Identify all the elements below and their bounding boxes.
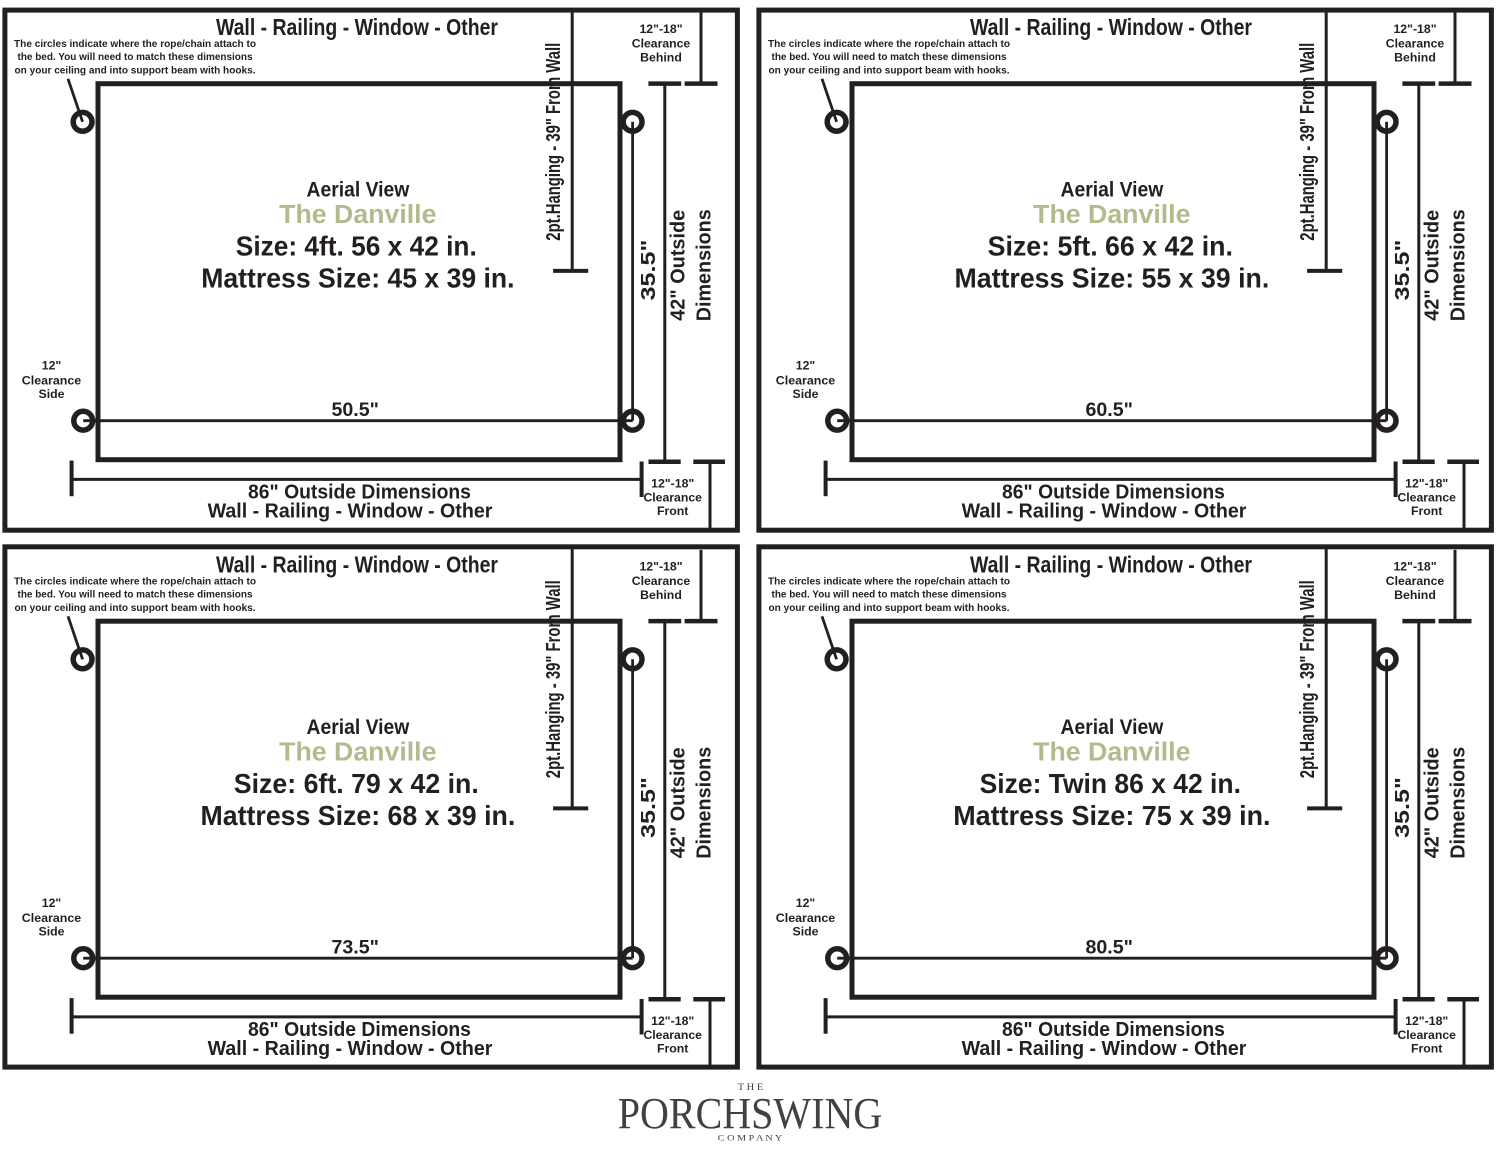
svg-text:Mattress Size: 45 x 39 in.: Mattress Size: 45 x 39 in. (201, 262, 514, 293)
svg-text:Size: 4ft. 56 x 42 in.: Size: 4ft. 56 x 42 in. (236, 231, 477, 262)
svg-text:The circles indicate where the: The circles indicate where the rope/chai… (768, 39, 1010, 50)
svg-text:12": 12" (42, 359, 62, 373)
svg-text:2pt.Hanging - 39" From Wall: 2pt.Hanging - 39" From Wall (1297, 43, 1319, 241)
svg-text:80.5": 80.5" (1085, 937, 1132, 959)
svg-text:The circles indicate where the: The circles indicate where the rope/chai… (14, 576, 256, 587)
svg-text:Wall - Railing - Window - Othe: Wall - Railing - Window - Other (216, 14, 498, 40)
svg-text:The Danville: The Danville (279, 199, 436, 229)
svg-text:Front: Front (1411, 504, 1442, 518)
svg-text:Behind: Behind (1394, 51, 1436, 65)
svg-text:Clearance: Clearance (643, 491, 702, 505)
svg-text:The Danville: The Danville (279, 736, 436, 766)
svg-text:Clearance: Clearance (632, 36, 691, 50)
svg-text:Clearance: Clearance (22, 374, 82, 388)
svg-text:The circles indicate where the: The circles indicate where the rope/chai… (14, 39, 256, 50)
svg-text:35.5": 35.5" (1391, 777, 1414, 838)
svg-text:The circles indicate where the: The circles indicate where the rope/chai… (768, 576, 1010, 587)
svg-text:Aerial View: Aerial View (1061, 177, 1164, 201)
svg-text:Aerial View: Aerial View (1061, 715, 1164, 739)
svg-text:on your ceiling and into suppo: on your ceiling and into support beam wi… (15, 603, 256, 614)
svg-text:Wall - Railing - Window - Othe: Wall - Railing - Window - Other (970, 14, 1252, 40)
svg-text:12"-18": 12"-18" (651, 477, 694, 491)
svg-text:42" Outside: 42" Outside (668, 210, 690, 321)
svg-text:Side: Side (793, 925, 819, 939)
svg-text:Behind: Behind (1394, 588, 1436, 602)
svg-text:Front: Front (1411, 1042, 1442, 1056)
svg-text:12"-18": 12"-18" (1405, 1014, 1448, 1028)
svg-text:Side: Side (793, 387, 819, 401)
svg-text:Clearance: Clearance (1397, 491, 1456, 505)
svg-text:2pt.Hanging - 39" From Wall: 2pt.Hanging - 39" From Wall (1297, 580, 1319, 778)
svg-text:Wall - Railing - Window - Othe: Wall - Railing - Window - Other (208, 1037, 493, 1060)
svg-text:PORCHSWING: PORCHSWING (618, 1088, 883, 1138)
svg-text:the bed. You will need to matc: the bed. You will need to match these di… (772, 52, 1007, 63)
svg-text:Behind: Behind (640, 51, 682, 65)
svg-text:Aerial View: Aerial View (307, 177, 410, 201)
svg-text:12": 12" (796, 359, 816, 373)
svg-text:Behind: Behind (640, 588, 682, 602)
svg-text:12"-18": 12"-18" (1393, 22, 1436, 36)
svg-text:Side: Side (39, 387, 65, 401)
svg-text:The Danville: The Danville (1033, 199, 1190, 229)
svg-text:12"-18": 12"-18" (639, 559, 682, 573)
svg-text:Clearance: Clearance (22, 911, 82, 925)
svg-text:the bed. You will need to matc: the bed. You will need to match these di… (772, 590, 1007, 601)
svg-text:Size: 6ft. 79 x 42 in.: Size: 6ft. 79 x 42 in. (234, 768, 479, 799)
svg-text:12": 12" (42, 896, 62, 910)
svg-text:60.5": 60.5" (1085, 399, 1132, 421)
svg-text:Mattress Size: 75 x 39 in.: Mattress Size: 75 x 39 in. (953, 800, 1270, 831)
svg-text:Clearance: Clearance (776, 374, 836, 388)
svg-text:12": 12" (796, 896, 816, 910)
svg-text:Wall - Railing - Window - Othe: Wall - Railing - Window - Other (970, 552, 1252, 578)
svg-text:Dimensions: Dimensions (1447, 209, 1469, 321)
svg-text:Clearance: Clearance (643, 1028, 702, 1042)
svg-text:Dimensions: Dimensions (693, 209, 715, 321)
svg-text:the bed. You will need to matc: the bed. You will need to match these di… (18, 590, 253, 601)
svg-text:Aerial View: Aerial View (307, 715, 410, 739)
svg-text:12"-18": 12"-18" (651, 1014, 694, 1028)
svg-text:Clearance: Clearance (1397, 1028, 1456, 1042)
svg-text:2pt.Hanging - 39" From Wall: 2pt.Hanging - 39" From Wall (543, 580, 565, 778)
svg-text:Size: 5ft. 66 x 42 in.: Size: 5ft. 66 x 42 in. (988, 231, 1233, 262)
svg-text:42" Outside: 42" Outside (668, 747, 690, 858)
svg-text:on your ceiling and into suppo: on your ceiling and into support beam wi… (769, 603, 1010, 614)
svg-text:Front: Front (657, 504, 688, 518)
svg-text:Dimensions: Dimensions (1447, 747, 1469, 859)
svg-text:Clearance: Clearance (1386, 36, 1445, 50)
svg-text:2pt.Hanging - 39" From Wall: 2pt.Hanging - 39" From Wall (543, 43, 565, 241)
svg-text:35.5": 35.5" (637, 240, 660, 301)
svg-text:Front: Front (657, 1042, 688, 1056)
svg-text:Clearance: Clearance (1386, 574, 1445, 588)
svg-text:12"-18": 12"-18" (639, 22, 682, 36)
svg-text:42" Outside: 42" Outside (1422, 747, 1444, 858)
svg-text:C O M P A N Y: C O M P A N Y (718, 1133, 783, 1143)
svg-text:Wall - Railing - Window - Othe: Wall - Railing - Window - Other (962, 1037, 1247, 1060)
svg-text:The Danville: The Danville (1033, 736, 1190, 766)
svg-text:35.5": 35.5" (1391, 240, 1414, 301)
svg-text:Clearance: Clearance (632, 574, 691, 588)
svg-text:on your ceiling and into suppo: on your ceiling and into support beam wi… (769, 65, 1010, 76)
svg-text:35.5": 35.5" (637, 777, 660, 838)
svg-text:Wall - Railing - Window - Othe: Wall - Railing - Window - Other (216, 552, 498, 578)
svg-text:Mattress Size: 68 x 39 in.: Mattress Size: 68 x 39 in. (201, 800, 516, 831)
svg-text:12"-18": 12"-18" (1393, 559, 1436, 573)
svg-text:Wall - Railing - Window - Othe: Wall - Railing - Window - Other (208, 500, 493, 523)
svg-text:the bed. You will need to matc: the bed. You will need to match these di… (18, 52, 253, 63)
svg-text:Wall - Railing - Window - Othe: Wall - Railing - Window - Other (962, 500, 1247, 523)
svg-text:42" Outside: 42" Outside (1422, 210, 1444, 321)
svg-text:73.5": 73.5" (331, 937, 378, 959)
svg-text:50.5": 50.5" (331, 399, 378, 421)
svg-text:Clearance: Clearance (776, 911, 836, 925)
svg-text:Dimensions: Dimensions (693, 747, 715, 859)
svg-text:on your ceiling and into suppo: on your ceiling and into support beam wi… (15, 65, 256, 76)
svg-text:Side: Side (39, 925, 65, 939)
svg-text:Size: Twin 86 x 42 in.: Size: Twin 86 x 42 in. (980, 768, 1241, 799)
svg-text:12"-18": 12"-18" (1405, 477, 1448, 491)
svg-text:Mattress Size: 55 x 39 in.: Mattress Size: 55 x 39 in. (955, 262, 1270, 293)
